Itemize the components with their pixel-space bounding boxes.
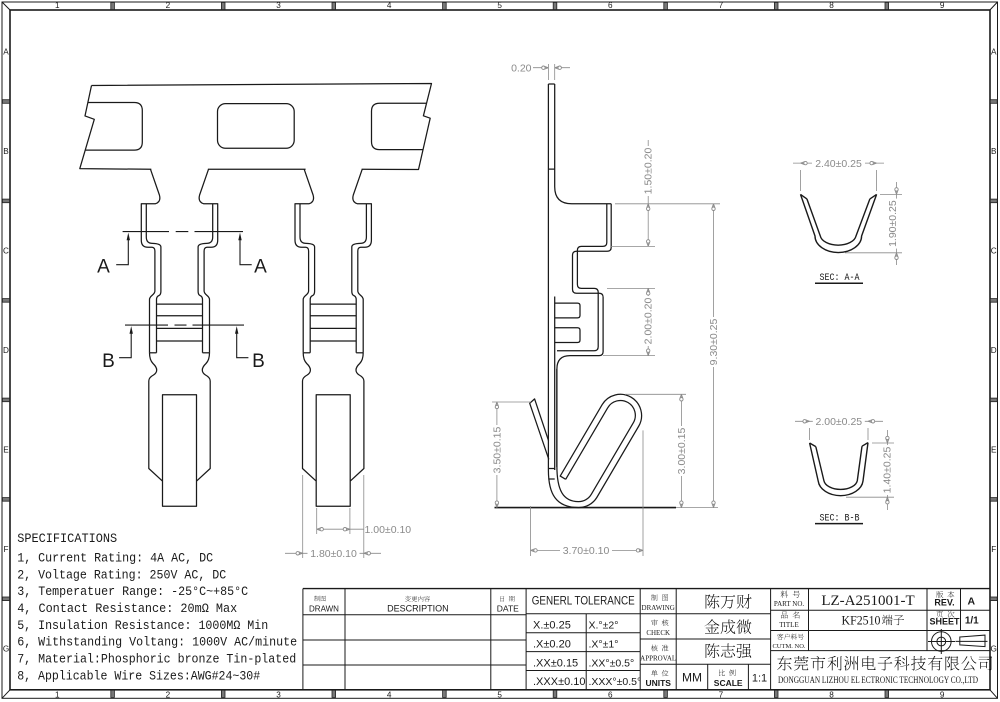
svg-text:SHEET: SHEET bbox=[929, 617, 960, 627]
svg-text:1.90±0.25: 1.90±0.25 bbox=[887, 200, 899, 247]
svg-text:1: 1 bbox=[55, 1, 60, 10]
svg-text:3: 3 bbox=[276, 690, 281, 699]
svg-text:DRAWING: DRAWING bbox=[642, 604, 675, 612]
svg-text:8: 8 bbox=[829, 690, 834, 699]
svg-text:2.00±0.25: 2.00±0.25 bbox=[815, 416, 862, 428]
svg-text:F: F bbox=[991, 545, 996, 554]
svg-text:B: B bbox=[252, 351, 265, 372]
svg-text:9.30±0.25: 9.30±0.25 bbox=[708, 319, 720, 366]
svg-text:3: 3 bbox=[276, 1, 281, 10]
svg-text:4: 4 bbox=[387, 1, 392, 10]
svg-text:APPROVAL: APPROVAL bbox=[640, 654, 676, 662]
svg-text:E: E bbox=[991, 446, 997, 455]
svg-text:2: 2 bbox=[166, 690, 171, 699]
svg-text:8: 8 bbox=[829, 1, 834, 10]
svg-text:8, Applicable Wire Sizes:AWG#2: 8, Applicable Wire Sizes:AWG#24~30# bbox=[17, 669, 260, 683]
svg-text:DONGGUAN LIZHOU EL ECTRONIC TE: DONGGUAN LIZHOU EL ECTRONIC TECHNOLOGY C… bbox=[778, 675, 978, 685]
svg-text:DATE: DATE bbox=[497, 603, 519, 613]
svg-text:SCALE: SCALE bbox=[714, 678, 743, 688]
svg-text:C: C bbox=[3, 247, 9, 256]
svg-text:A: A bbox=[3, 48, 9, 57]
svg-text:D: D bbox=[3, 346, 9, 355]
svg-text:A: A bbox=[968, 596, 976, 608]
svg-text:A: A bbox=[991, 48, 997, 57]
svg-text:1.00±0.10: 1.00±0.10 bbox=[365, 524, 412, 536]
svg-text:3, Temperatuer Range: -25°C~+8: 3, Temperatuer Range: -25°C~+85°C bbox=[17, 585, 248, 599]
svg-text:KF2510: KF2510 bbox=[842, 612, 881, 627]
svg-text:6, Withstanding Voltang: 1000V: 6, Withstanding Voltang: 1000V AC/minute bbox=[17, 636, 297, 650]
svg-text:3.70±0.10: 3.70±0.10 bbox=[563, 545, 610, 557]
svg-text:7: 7 bbox=[719, 690, 724, 699]
svg-text:5: 5 bbox=[497, 690, 502, 699]
svg-text:B: B bbox=[102, 351, 115, 372]
svg-text:2: 2 bbox=[166, 1, 171, 10]
svg-text:2.00±0.20: 2.00±0.20 bbox=[643, 298, 655, 345]
svg-text:X.±0.25: X.±0.25 bbox=[533, 620, 571, 632]
svg-text:.X°±1°: .X°±1° bbox=[589, 638, 619, 650]
svg-text:C: C bbox=[991, 247, 997, 256]
svg-text:1.80±0.10: 1.80±0.10 bbox=[310, 548, 357, 560]
svg-text:3.50±0.15: 3.50±0.15 bbox=[491, 427, 503, 474]
svg-text:7: 7 bbox=[719, 1, 724, 10]
svg-text:1, Current Rating: 4A AC, DC: 1, Current Rating: 4A AC, DC bbox=[17, 552, 213, 566]
svg-text:REV.: REV. bbox=[934, 598, 954, 608]
svg-text:D: D bbox=[991, 346, 997, 355]
svg-text:PART NO.: PART NO. bbox=[774, 600, 805, 608]
svg-text:A: A bbox=[254, 257, 267, 278]
svg-text:SPECIFICATIONS: SPECIFICATIONS bbox=[17, 532, 117, 546]
svg-text:GENERL TOLERANCE: GENERL TOLERANCE bbox=[532, 596, 635, 608]
svg-text:TITLE: TITLE bbox=[779, 621, 798, 629]
svg-text:6: 6 bbox=[608, 690, 613, 699]
svg-text:CHECK: CHECK bbox=[646, 629, 670, 637]
svg-text:X.°±2°: X.°±2° bbox=[589, 620, 619, 632]
svg-text:2, Voltage Rating: 250V AC, DC: 2, Voltage Rating: 250V AC, DC bbox=[17, 568, 226, 582]
svg-text:DRAWN: DRAWN bbox=[309, 604, 339, 613]
svg-text:F: F bbox=[3, 545, 8, 554]
svg-text:.XX°±0.5°: .XX°±0.5° bbox=[589, 657, 635, 669]
svg-text:.X±0.20: .X±0.20 bbox=[533, 638, 571, 650]
svg-text:E: E bbox=[3, 446, 9, 455]
svg-text:1.40±0.25: 1.40±0.25 bbox=[882, 447, 894, 494]
svg-text:A: A bbox=[97, 257, 110, 278]
svg-text:2.40±0.25: 2.40±0.25 bbox=[815, 158, 862, 170]
svg-text:5, Insulation Resistance: 1000: 5, Insulation Resistance: 1000MΩ Min bbox=[17, 619, 268, 633]
svg-text:4: 4 bbox=[387, 690, 392, 699]
svg-text:B: B bbox=[3, 147, 9, 156]
svg-text:9: 9 bbox=[940, 1, 945, 10]
svg-text:0.20: 0.20 bbox=[511, 63, 532, 75]
svg-text:3.00±0.15: 3.00±0.15 bbox=[676, 428, 688, 475]
svg-text:.XXX±0.10: .XXX±0.10 bbox=[533, 676, 586, 688]
svg-text:4, Contact Resistance: 20mΩ Ma: 4, Contact Resistance: 20mΩ Max bbox=[17, 602, 237, 616]
svg-text:CUTM. NO.: CUTM. NO. bbox=[772, 643, 805, 650]
svg-text:LZ-A251001-T: LZ-A251001-T bbox=[821, 593, 914, 609]
svg-text:7, Material:Phosphoric bronze: 7, Material:Phosphoric bronze Tin-plated bbox=[17, 653, 296, 667]
svg-text:1/1: 1/1 bbox=[965, 615, 979, 626]
svg-text:.XXX°±0.5°: .XXX°±0.5° bbox=[589, 676, 642, 688]
svg-text:G: G bbox=[3, 645, 9, 654]
svg-text:.XX±0.15: .XX±0.15 bbox=[533, 657, 578, 669]
svg-text:G: G bbox=[991, 645, 997, 654]
svg-text:1: 1 bbox=[55, 690, 60, 699]
svg-text:MM: MM bbox=[682, 671, 702, 685]
svg-text:DESCRIPTION: DESCRIPTION bbox=[387, 603, 449, 613]
svg-text:1:1: 1:1 bbox=[752, 673, 767, 685]
svg-text:1.50±0.20: 1.50±0.20 bbox=[643, 148, 655, 195]
svg-text:9: 9 bbox=[940, 690, 945, 699]
svg-text:UNITS: UNITS bbox=[645, 678, 671, 688]
svg-text:6: 6 bbox=[608, 1, 613, 10]
svg-text:5: 5 bbox=[497, 1, 502, 10]
svg-text:B: B bbox=[991, 147, 997, 156]
